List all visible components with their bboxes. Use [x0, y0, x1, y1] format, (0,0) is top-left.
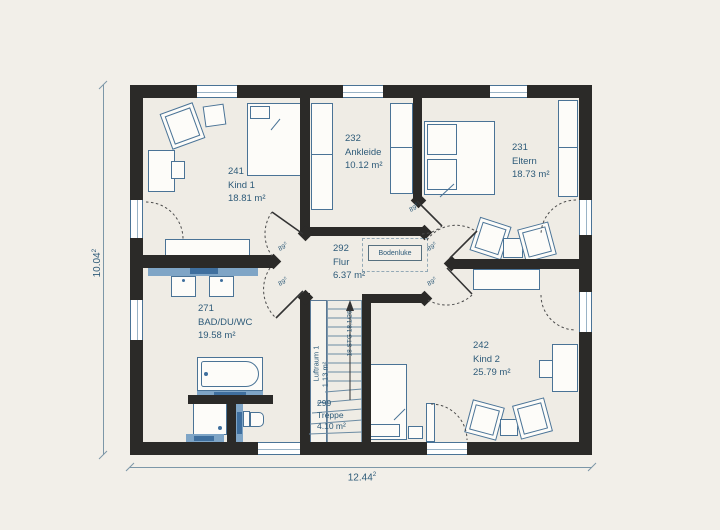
floor-plan: Bodenluke 241 Kind 1 18.81 m² 232 Anklei… [0, 0, 720, 530]
room-area: 10.12 m² [345, 159, 383, 173]
dimension-line-bottom [130, 467, 592, 468]
wall [362, 294, 371, 443]
room-area: 25.79 m² [473, 366, 511, 380]
room-label-bad: 271 BAD/DU/WC 19.58 m² [198, 302, 252, 343]
window [343, 85, 383, 98]
room-label-kind1: 241 Kind 1 18.81 m² [228, 165, 266, 206]
balcony-door [579, 200, 592, 235]
luftraum-area: 1.13 m² [321, 330, 330, 420]
room-area: 18.81 m² [228, 192, 266, 206]
balcony-door [579, 292, 592, 332]
room-number: 271 [198, 302, 252, 316]
wall [451, 259, 592, 269]
room-label-kind2: 242 Kind 2 25.79 m² [473, 339, 511, 380]
room-area: 18.73 m² [512, 168, 550, 182]
bodenluke-label: Bodenluke [378, 250, 411, 257]
room-area: 19.58 m² [198, 329, 252, 343]
room-label-eltern: 231 Eltern 18.73 m² [512, 141, 550, 182]
room-name: Eltern [512, 155, 550, 169]
wall [300, 293, 310, 443]
window [130, 300, 143, 340]
room-name: Ankleide [345, 146, 383, 160]
dimension-left-label: 10.042 [91, 218, 103, 308]
window [258, 442, 300, 455]
room-name: Flur [333, 256, 365, 270]
window [197, 85, 237, 98]
luftraum-label: Luftraum 1 [312, 319, 321, 409]
room-area: 4.10 m² [317, 421, 346, 433]
wall [130, 255, 273, 268]
room-name: BAD/DU/WC [198, 316, 252, 330]
balcony-door [130, 200, 143, 238]
wall [362, 294, 424, 303]
room-label-ankleide: 232 Ankleide 10.12 m² [345, 132, 383, 173]
room-number: 232 [345, 132, 383, 146]
room-label-flur: 292 Flur 6.37 m² [333, 242, 365, 283]
window [490, 85, 527, 98]
dimension-bottom-label: 12.442 [331, 471, 393, 483]
room-number: 231 [512, 141, 550, 155]
room-area: 6.37 m² [333, 269, 365, 283]
wall [188, 395, 273, 404]
wall [300, 98, 310, 233]
wall [304, 227, 424, 236]
room-number: 242 [473, 339, 511, 353]
room-name: Kind 2 [473, 353, 511, 367]
room-name: Kind 1 [228, 179, 266, 193]
wall [413, 98, 422, 200]
balcony-door [427, 442, 467, 455]
room-number: 292 [333, 242, 365, 256]
room-number: 241 [228, 165, 266, 179]
bodenluke-label-box: Bodenluke [368, 245, 422, 261]
door-leaf [426, 403, 435, 442]
wall [227, 404, 236, 443]
stair-note: 18 STG 18,1/26 [347, 289, 354, 379]
